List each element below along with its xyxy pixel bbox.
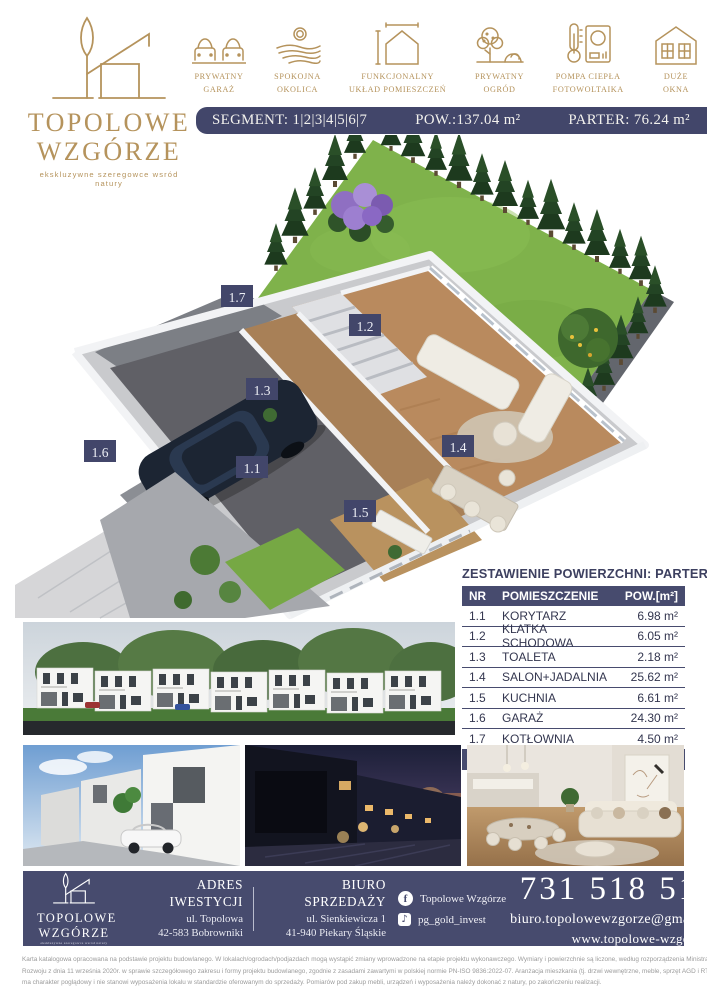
svg-text:1.2: 1.2 [357, 319, 374, 334]
heat-pump-icon [564, 18, 612, 66]
feature-strip: PRYWATNYGARAŻ SPOKOJNAOKOLICA [192, 18, 700, 96]
footer-divider [253, 887, 254, 931]
total-area: POW.:137.04 m² [415, 112, 520, 129]
feature-label: PRYWATNYOGRÓD [475, 71, 524, 96]
svg-text:1.6: 1.6 [92, 445, 109, 460]
tiktok-icon: ♪ [398, 913, 411, 926]
table-title: ZESTAWIENIE POWIERZCHNI: PARTER [462, 566, 685, 581]
photo-interior-living [467, 745, 684, 866]
coffee-table [575, 841, 615, 857]
lamp-glow [337, 831, 349, 843]
investment-address: ADRES IWESTYCJI ul. Topolowa 42-583 Bobr… [125, 877, 243, 940]
footer-logo-left: TOPOLOWE WZGÓRZE ekskluzywne szeregowce … [37, 872, 111, 945]
table-header-row: NR POMIESZCZENIE POW.[m²] [462, 586, 685, 606]
quiet-area-icon [275, 18, 321, 66]
blue-car [175, 704, 190, 710]
svg-text:1.4: 1.4 [450, 440, 467, 455]
table-row: 1.6GARAŻ24.30 m² [462, 709, 685, 730]
feature-label: FUNKCJONALNYUKŁAD POMIESZCZEŃ [349, 71, 446, 96]
floor-plan-render: 1.1 1.2 1.3 1.4 1.5 1.6 1.7 [0, 135, 707, 620]
plan-label-1-7: 1.7 [221, 285, 253, 307]
big-windows-icon [652, 18, 700, 66]
svg-text:1.5: 1.5 [352, 505, 369, 520]
contact-block: 731 518 516 biuro.topolowewzgorze@gmail.… [506, 870, 707, 947]
photo-street-day [23, 745, 240, 866]
feature-big-windows: DUŻEOKNA [652, 18, 700, 96]
plan-label-1-5: 1.5 [344, 500, 376, 522]
segment-info-bar: SEGMENT: 1|2|3|4|5|6|7 POW.:137.04 m² PA… [196, 107, 707, 134]
area-summary-table: ZESTAWIENIE POWIERZCHNI: PARTER NR POMIE… [462, 566, 685, 770]
functional-layout-icon [374, 18, 422, 66]
svg-text:1.1: 1.1 [244, 461, 261, 476]
tiktok-link[interactable]: ♪ pg_gold_invest [398, 913, 506, 926]
footer-bar: TOPOLOWE WZGÓRZE ekskluzywne szeregowce … [23, 871, 684, 946]
disclaimer-line: ma charakter poglądowy i nie stanowi wyp… [22, 977, 694, 989]
disclaimer-line: Rozwoju z dnia 11 września 2020r. w spra… [22, 966, 694, 978]
footer-logo-icon [51, 872, 97, 906]
legal-disclaimer: Karta katalogowa opracowana na podstawie… [22, 954, 694, 989]
email-address[interactable]: biuro.topolowewzgorze@gmail.com [510, 912, 707, 929]
feature-private-garage: PRYWATNYGARAŻ [192, 18, 246, 96]
phone-number[interactable]: 731 518 516 [510, 870, 707, 910]
feature-private-garden: PRYWATNYOGRÓD [475, 18, 525, 96]
brand-logo-icon [49, 12, 169, 108]
facebook-link[interactable]: f Topolowe Wzgórze [398, 891, 506, 906]
feature-quiet-area: SPOKOJNAOKOLICA [274, 18, 321, 96]
photo-street-night [245, 745, 461, 866]
red-car [85, 702, 100, 708]
feature-label: SPOKOJNAOKOLICA [274, 71, 321, 96]
table-row: 1.5KUCHNIA6.61 m² [462, 688, 685, 709]
website-url[interactable]: www.topolowe-wzgorze.pl [510, 931, 707, 947]
feature-label: PRYWATNYGARAŻ [195, 71, 244, 96]
floor-area: PARTER: 76.24 m² [568, 112, 690, 129]
segment-numbers: SEGMENT: 1|2|3|4|5|6|7 [212, 112, 367, 129]
plant [561, 788, 579, 806]
facebook-icon: f [398, 891, 413, 906]
garden-tree [558, 308, 618, 368]
svg-text:1.7: 1.7 [229, 290, 246, 305]
private-garden-icon [475, 18, 525, 66]
feature-heat-pump: POMPA CIEPŁAFOTOWOLTAIKA [553, 18, 624, 96]
svg-text:1.3: 1.3 [254, 383, 271, 398]
social-links: f Topolowe Wzgórze ♪ pg_gold_invest [398, 891, 506, 926]
plan-label-1-3: 1.3 [246, 378, 278, 400]
lamp-glow [391, 825, 399, 833]
sofa [579, 801, 681, 837]
private-garage-icon [192, 18, 246, 66]
table-row: 1.3TOALETA2.18 m² [462, 647, 685, 668]
table-row: 1.2KLATKA SCHODOWA6.05 m² [462, 627, 685, 648]
plan-label-1-6: 1.6 [84, 440, 116, 462]
feature-label: DUŻEOKNA [663, 71, 689, 96]
brand-title-line1: TOPOLOWE [25, 108, 193, 137]
disclaimer-line: Karta katalogowa opracowana na podstawie… [22, 954, 694, 966]
feature-functional-layout: FUNKCJONALNYUKŁAD POMIESZCZEŃ [349, 18, 446, 96]
table-row: 1.4SALON+JADALNIA25.62 m² [462, 668, 685, 689]
lamp-glow [358, 822, 368, 832]
plan-label-1-1: 1.1 [236, 456, 268, 478]
sales-office-address: BIURO SPRZEDAŻY ul. Sienkiewicza 1 41-94… [264, 877, 386, 940]
catalog-card-page: TOPOLOWE WZGÓRZE ekskluzywne szeregowce … [0, 0, 707, 1000]
photo-row-houses-elevation [23, 622, 455, 735]
plan-label-1-4: 1.4 [442, 435, 474, 457]
plan-label-1-2: 1.2 [349, 314, 381, 336]
feature-label: POMPA CIEPŁAFOTOWOLTAIKA [553, 71, 624, 96]
